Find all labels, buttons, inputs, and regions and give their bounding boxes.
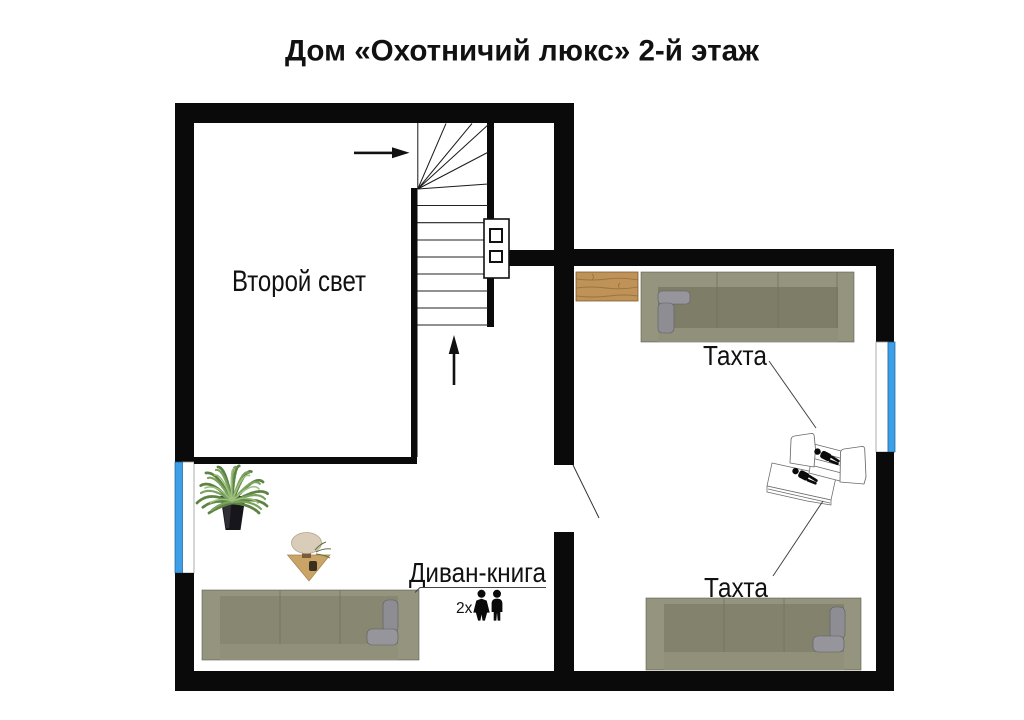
svg-text:Диван-книга: Диван-книга (409, 557, 547, 588)
svg-text:Второй свет: Второй свет (232, 265, 366, 298)
svg-text:2x: 2x (456, 600, 473, 617)
svg-text:Тахта: Тахта (703, 340, 768, 371)
svg-text:Тахта: Тахта (704, 572, 769, 603)
svg-text:Дом «Охотничий люкс» 2-й этаж: Дом «Охотничий люкс» 2-й этаж (285, 35, 760, 68)
